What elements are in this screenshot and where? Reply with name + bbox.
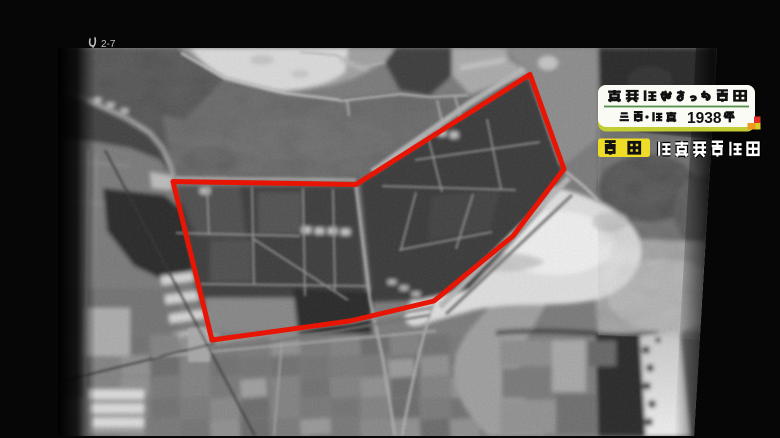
- svg-text:1938: 1938: [687, 110, 722, 127]
- svg-text:2-7: 2-7: [101, 39, 116, 50]
